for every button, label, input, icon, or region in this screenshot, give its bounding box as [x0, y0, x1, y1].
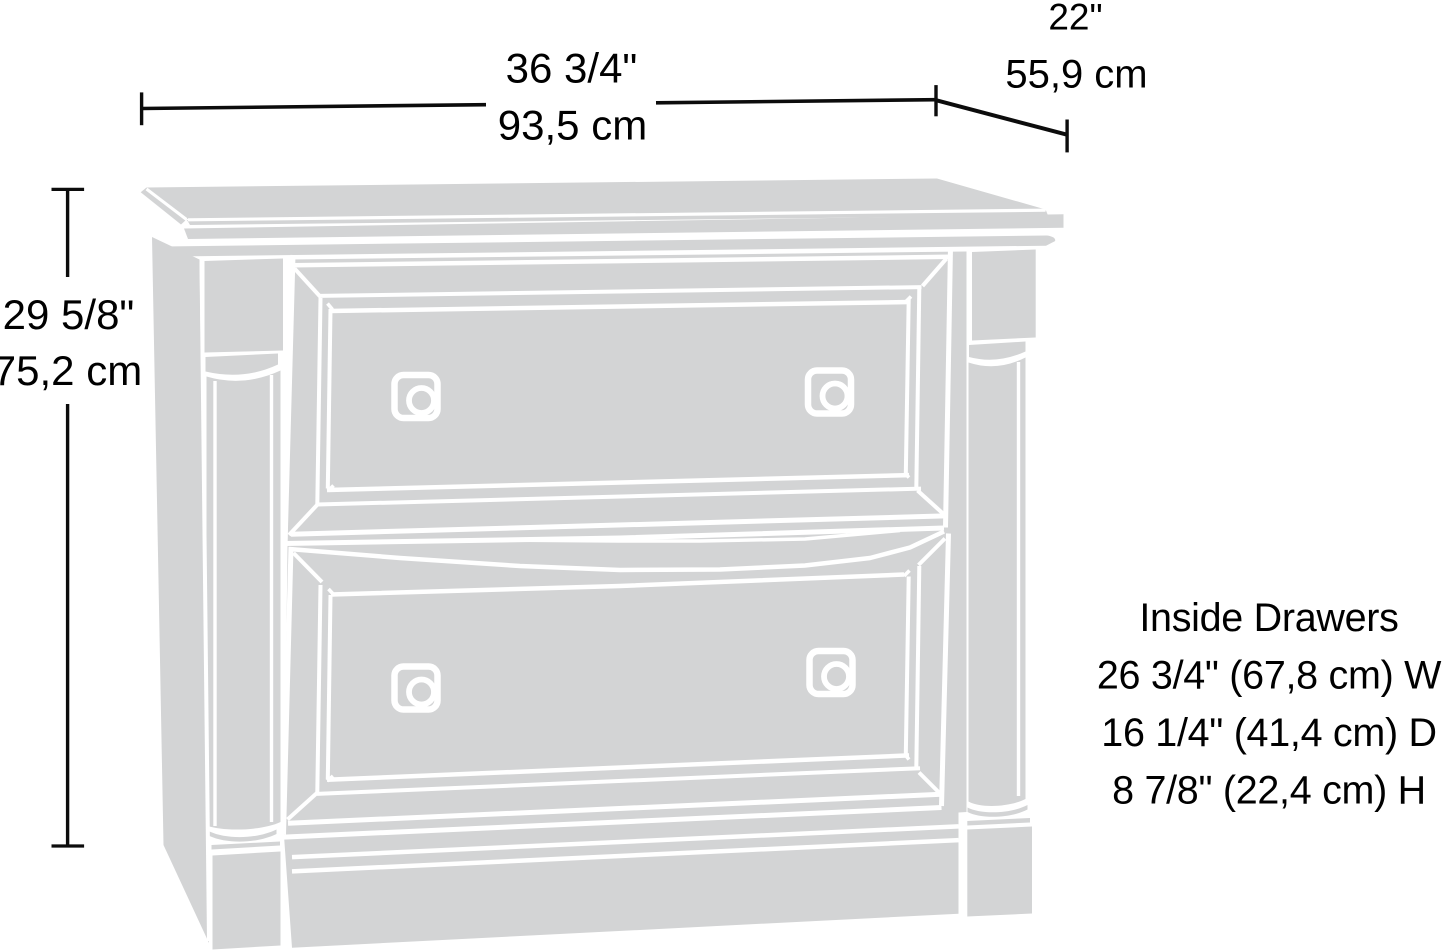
- svg-text:26 3/4" (67,8 cm) W: 26 3/4" (67,8 cm) W: [1097, 654, 1442, 698]
- svg-text:Inside Drawers: Inside Drawers: [1139, 596, 1398, 640]
- svg-text:93,5 cm: 93,5 cm: [498, 102, 647, 149]
- svg-text:16 1/4" (41,4 cm) D: 16 1/4" (41,4 cm) D: [1101, 711, 1436, 755]
- svg-text:55,9 cm: 55,9 cm: [1005, 53, 1147, 97]
- svg-text:36 3/4": 36 3/4": [506, 45, 638, 92]
- svg-text:29 5/8": 29 5/8": [3, 291, 135, 338]
- svg-text:22": 22": [1048, 0, 1102, 38]
- svg-text:8 7/8" (22,4 cm) H: 8 7/8" (22,4 cm) H: [1112, 769, 1426, 813]
- svg-text:75,2 cm: 75,2 cm: [0, 347, 142, 394]
